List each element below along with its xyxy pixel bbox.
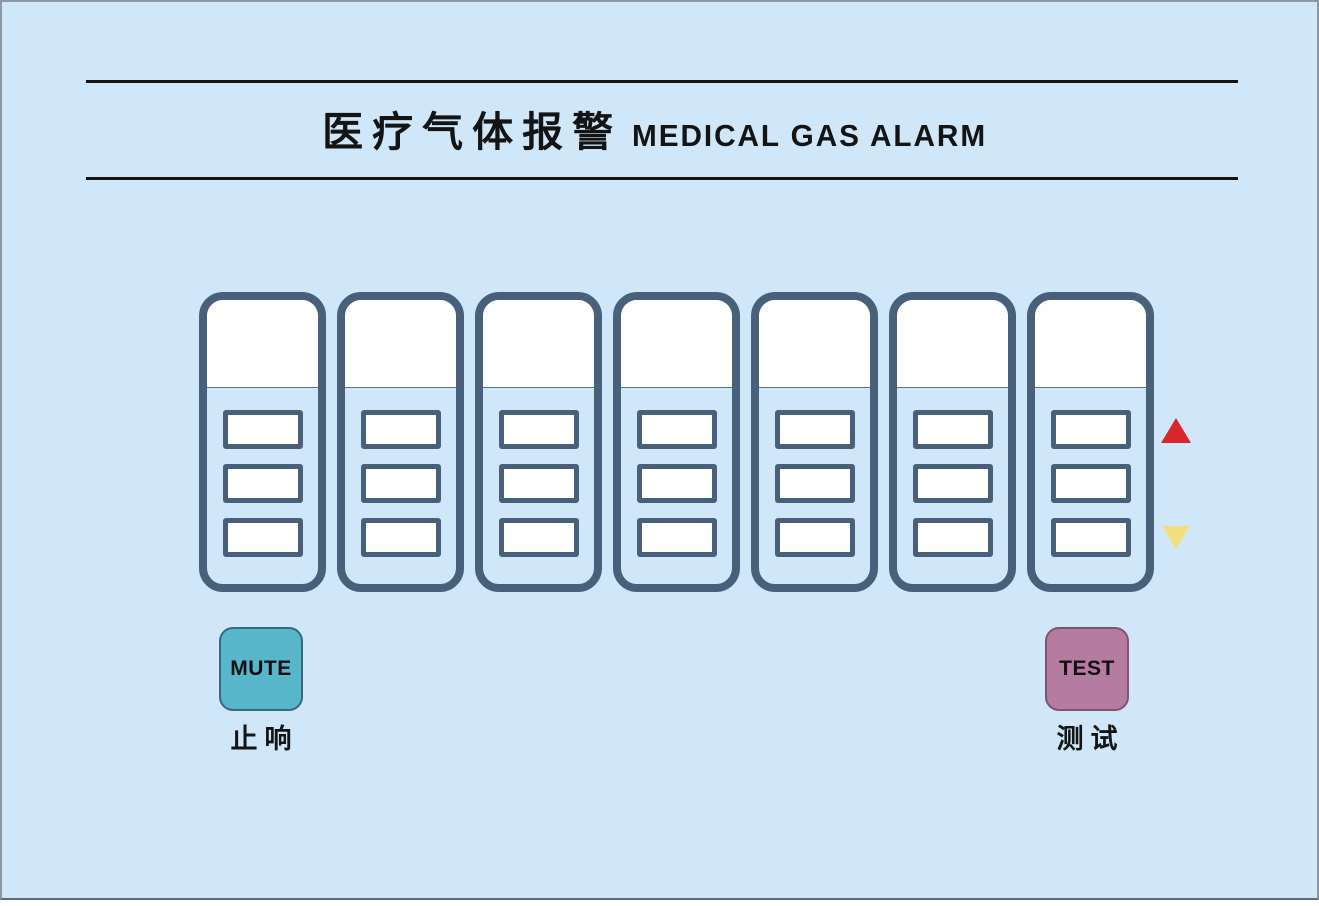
gas-display-window (897, 300, 1008, 388)
gas-channel-row (199, 292, 1154, 592)
indicator-slot (1051, 464, 1131, 503)
gas-channel-panel-channel-2 (337, 292, 464, 592)
gas-display-window (621, 300, 732, 388)
low-alarm-triangle-icon (1162, 526, 1190, 549)
indicator-slot (223, 410, 303, 449)
title-rule-top (86, 80, 1238, 83)
indicator-slot-group (207, 388, 318, 557)
high-alarm-triangle-icon (1161, 418, 1191, 443)
indicator-slot (361, 464, 441, 503)
indicator-slot (361, 518, 441, 557)
gas-channel-panel-channel-1 (199, 292, 326, 592)
indicator-slot (913, 518, 993, 557)
indicator-slot (775, 464, 855, 503)
indicator-slot (637, 464, 717, 503)
gas-channel-panel-channel-7 (1027, 292, 1154, 592)
indicator-slot (913, 464, 993, 503)
mute-button[interactable]: MUTE (219, 627, 303, 711)
indicator-slot (1051, 410, 1131, 449)
test-button[interactable]: TEST (1045, 627, 1129, 711)
indicator-slot (499, 410, 579, 449)
indicator-slot (775, 518, 855, 557)
indicator-slot (499, 518, 579, 557)
mute-button-caption: 止响 (219, 717, 303, 756)
indicator-slot (499, 464, 579, 503)
indicator-slot (1051, 518, 1131, 557)
indicator-slot-group (621, 388, 732, 557)
indicator-slot (775, 410, 855, 449)
gas-display-window (759, 300, 870, 388)
indicator-slot-group (759, 388, 870, 557)
bottom-white-strip (0, 900, 1319, 906)
indicator-slot-group (897, 388, 1008, 557)
page-title: 医疗气体报警 MEDICAL GAS ALARM (86, 90, 1238, 174)
indicator-slot (637, 410, 717, 449)
indicator-slot-group (483, 388, 594, 557)
indicator-slot (913, 410, 993, 449)
title-english: MEDICAL GAS ALARM (632, 118, 987, 154)
gas-channel-panel-channel-4 (613, 292, 740, 592)
indicator-slot (361, 410, 441, 449)
gas-channel-panel-channel-6 (889, 292, 1016, 592)
gas-display-window (483, 300, 594, 388)
test-button-caption: 测试 (1045, 717, 1129, 756)
indicator-slot (223, 464, 303, 503)
gas-channel-panel-channel-5 (751, 292, 878, 592)
gas-display-window (345, 300, 456, 388)
title-chinese: 医疗气体报警 (322, 90, 622, 174)
title-rule-bottom (86, 177, 1238, 180)
indicator-slot-group (345, 388, 456, 557)
gas-display-window (1035, 300, 1146, 388)
faceplate-background: 医疗气体报警 MEDICAL GAS ALARM (0, 0, 1319, 900)
alarm-faceplate-image: 医疗气体报警 MEDICAL GAS ALARM (0, 0, 1319, 906)
gas-channel-panel-channel-3 (475, 292, 602, 592)
indicator-slot (637, 518, 717, 557)
gas-display-window (207, 300, 318, 388)
indicator-slot-group (1035, 388, 1146, 557)
indicator-slot (223, 518, 303, 557)
